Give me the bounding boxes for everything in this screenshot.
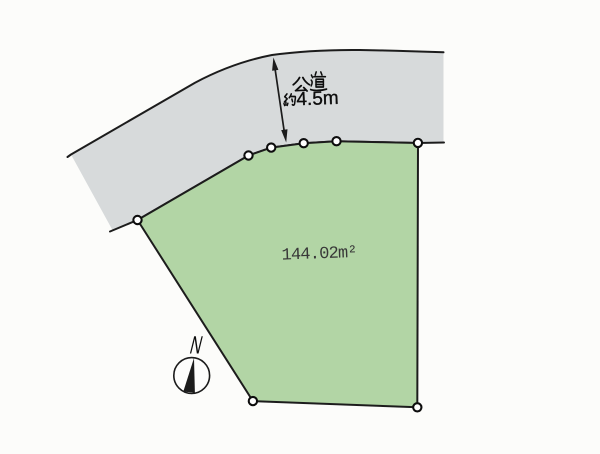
svg-text:144.02m²: 144.02m² <box>281 244 357 266</box>
svg-text:4.5m: 4.5m <box>296 88 339 110</box>
